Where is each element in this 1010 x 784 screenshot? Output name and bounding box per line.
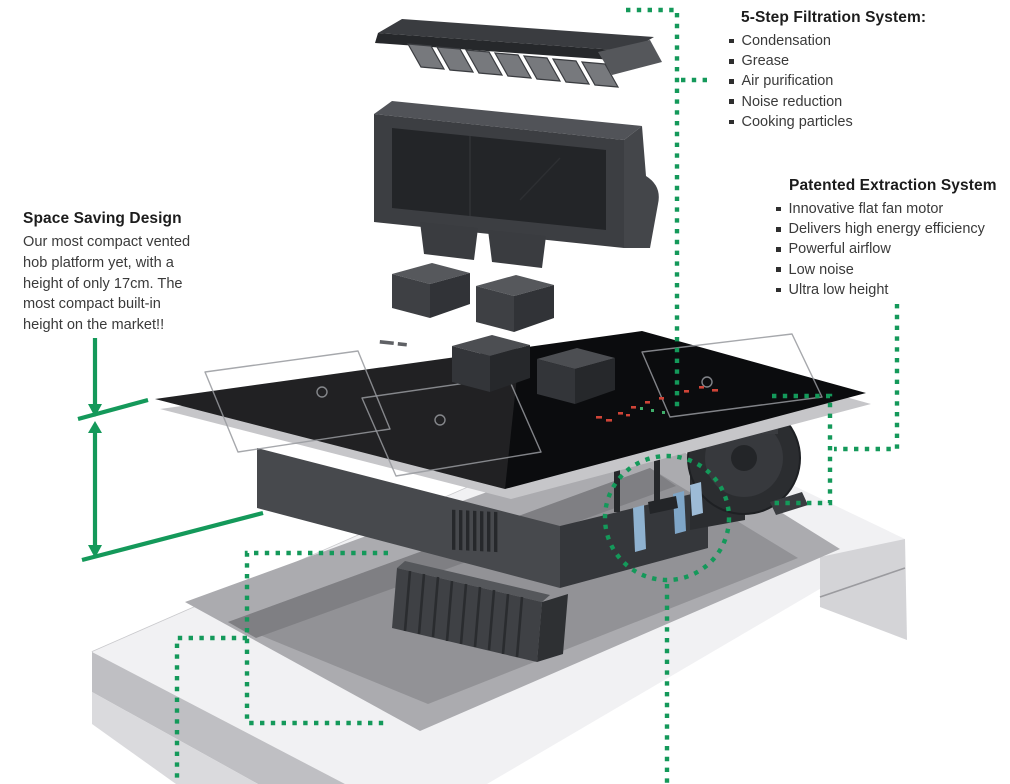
leader-line-extraction xyxy=(834,304,897,449)
filtration-item: Noise reduction xyxy=(742,94,843,110)
plenum-tab-right xyxy=(488,230,546,268)
brand-mark xyxy=(380,340,407,347)
bullet-icon xyxy=(729,79,734,84)
exploded-hob-diagram: 5-Step Filtration System: Condensation G… xyxy=(0,0,1010,784)
space-saving-line: most compact built-in xyxy=(23,294,213,315)
bullet-icon xyxy=(776,288,781,293)
filtration-item: Air purification xyxy=(742,73,834,89)
extraction-item: Delivers high energy efficiency xyxy=(789,221,985,237)
blue-bracket xyxy=(633,505,646,552)
filtration-item: Condensation xyxy=(742,33,832,49)
filtration-item: Grease xyxy=(742,53,790,69)
extraction-callout: Patented Extraction System Innovative fl… xyxy=(776,177,997,300)
bullet-icon xyxy=(729,120,734,125)
plenum-filter-box xyxy=(374,101,659,268)
space-saving-title: Space Saving Design xyxy=(23,210,213,228)
filtration-title: 5-Step Filtration System: xyxy=(741,9,926,27)
blue-bracket xyxy=(690,482,703,516)
plenum-side-bracket xyxy=(624,126,659,248)
extraction-title: Patented Extraction System xyxy=(789,177,997,195)
bullet-icon xyxy=(776,227,781,232)
foam-filter-blocks xyxy=(392,263,554,332)
plenum-tab-left xyxy=(420,222,478,260)
filtration-callout: 5-Step Filtration System: Condensation G… xyxy=(729,9,926,132)
bullet-icon xyxy=(729,99,734,104)
space-saving-text: Our most compact vented hob platform yet… xyxy=(23,232,213,336)
bullet-icon xyxy=(729,59,734,64)
bullet-icon xyxy=(729,39,734,44)
bullet-icon xyxy=(776,267,781,272)
filtration-item: Cooking particles xyxy=(742,114,853,130)
height-dimension-arrow xyxy=(78,338,263,560)
space-saving-line: hob platform yet, with a xyxy=(23,253,213,274)
extraction-list: Innovative flat fan motor Delivers high … xyxy=(776,199,997,300)
extraction-item: Ultra low height xyxy=(789,282,889,298)
fan-hub xyxy=(731,445,757,471)
extraction-item: Powerful airflow xyxy=(789,241,891,257)
bullet-icon xyxy=(776,207,781,212)
space-saving-line: Our most compact vented xyxy=(23,232,213,253)
baffle-filter-tray xyxy=(375,19,662,87)
space-saving-callout: Space Saving Design Our most compact ven… xyxy=(23,210,213,336)
space-saving-line: height on the market!! xyxy=(23,315,213,336)
extraction-item: Innovative flat fan motor xyxy=(789,201,944,217)
bullet-icon xyxy=(776,247,781,252)
extraction-item: Low noise xyxy=(789,262,854,278)
filtration-list: Condensation Grease Air purification Noi… xyxy=(729,31,926,132)
space-saving-line: height of only 17cm. The xyxy=(23,274,213,295)
